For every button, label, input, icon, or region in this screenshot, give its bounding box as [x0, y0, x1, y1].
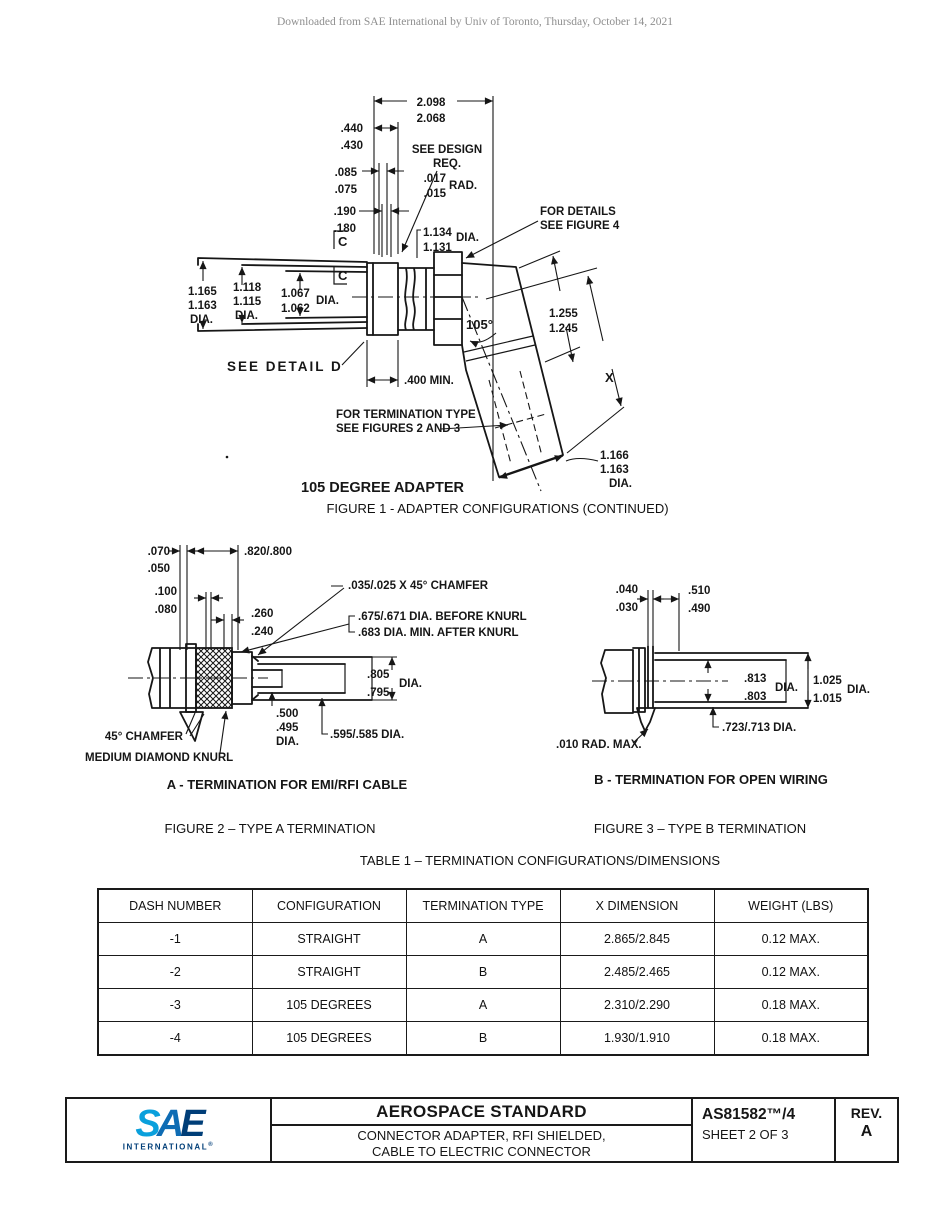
dim-1255-lower: 1.245 [549, 323, 578, 335]
dim-overall-lower: 2.068 [417, 113, 446, 125]
note-diamond-knurl: MEDIUM DIAMOND KNURL [85, 752, 233, 764]
document-title-line2: CABLE TO ELECTRIC CONNECTOR [372, 1144, 591, 1160]
section-c-top: C [338, 234, 348, 249]
table-row: -3 105 DEGREES A 2.310/2.290 0.18 MAX. [98, 989, 868, 1022]
stray-dot [226, 456, 229, 459]
dim-1166-upper: 1.166 [600, 450, 629, 462]
dim-100-lower: .080 [155, 604, 177, 616]
table-cell: 105 DEGREES [252, 1022, 406, 1056]
dim-1165-label: DIA. [190, 314, 213, 326]
dim-1118-lower: 1.115 [233, 296, 262, 308]
table-cell: 1.930/1.910 [560, 1022, 714, 1056]
dim-1025-label: DIA. [847, 684, 870, 696]
dim-1067-upper: 1.067 [281, 288, 310, 300]
table-cell: 2.865/2.845 [560, 923, 714, 956]
dim-440-upper: .440 [341, 123, 363, 135]
table-header-row: DASH NUMBER CONFIGURATION TERMINATION TY… [98, 889, 868, 923]
coupling-nut [434, 252, 462, 345]
dim-085-upper: .085 [335, 167, 358, 179]
chamfer-cone [180, 712, 203, 741]
dim-1134-label: DIA. [456, 232, 479, 244]
table-row: -2 STRAIGHT B 2.485/2.465 0.12 MAX. [98, 956, 868, 989]
table-cell: 105 DEGREES [252, 989, 406, 1022]
figure1-subtitle: 105 DEGREE ADAPTER [301, 480, 465, 496]
sae-logo-wordmark: SAE [135, 1108, 201, 1140]
dim-723: .723/.713 DIA. [722, 722, 796, 734]
table-cell: -3 [98, 989, 252, 1022]
dim-1166-label: DIA. [609, 478, 632, 490]
dim-400-min: .400 MIN. [404, 375, 454, 387]
dim-440-lower: .430 [341, 140, 363, 152]
document-page: Downloaded from SAE International by Uni… [0, 0, 950, 1230]
watermark-text: Downloaded from SAE International by Uni… [0, 16, 950, 28]
header-dash-number: DASH NUMBER [98, 889, 252, 923]
title-block-center: AEROSPACE STANDARD CONNECTOR ADAPTER, RF… [272, 1099, 693, 1161]
dim-040-upper: .040 [616, 584, 638, 596]
table1-title: TABLE 1 – TERMINATION CONFIGURATIONS/DIM… [130, 853, 950, 868]
dim-100-upper: .100 [155, 586, 177, 598]
dim-1134-upper: 1.134 [423, 227, 452, 239]
dim-1067-lower: 1.062 [281, 303, 310, 315]
header-x-dimension: X DIMENSION [560, 889, 714, 923]
figure3-label: B - TERMINATION FOR OPEN WIRING [594, 772, 828, 787]
dim-500-lower: .495 [276, 722, 299, 734]
note-45-chamfer: 45° CHAMFER [105, 731, 184, 743]
table-cell: A [406, 989, 560, 1022]
dim-x: X [605, 370, 614, 385]
note-design-2: REQ. [433, 158, 461, 170]
dim-010-rad: .010 RAD. MAX. [556, 739, 642, 751]
document-title: CONNECTOR ADAPTER, RFI SHIELDED, CABLE T… [272, 1126, 691, 1161]
dim-500-upper: .500 [276, 708, 298, 720]
dim-1118-upper: 1.118 [233, 282, 262, 294]
termination-a-outline [128, 644, 372, 741]
note-see-detail-d: SEE DETAIL D [227, 359, 343, 374]
document-title-line1: CONNECTOR ADAPTER, RFI SHIELDED, [357, 1128, 605, 1144]
dim-rad-lower: .015 [424, 188, 447, 200]
figure2-caption: FIGURE 2 – TYPE A TERMINATION [80, 821, 460, 836]
figure1-drawing: 2.098 2.068 .440 .430 SEE DESIGN REQ. .0… [150, 85, 710, 505]
dim-070-upper: .070 [148, 546, 170, 558]
dim-510-lower: .490 [688, 603, 710, 615]
dim-500-label: DIA. [276, 736, 299, 748]
dim-1166-lower: 1.163 [600, 464, 629, 476]
note-details-1: FOR DETAILS [540, 206, 616, 218]
note-after-knurl: .683 DIA. MIN. AFTER KNURL [358, 627, 519, 639]
sheet-number: SHEET 2 OF 3 [702, 1127, 825, 1142]
table-cell: 0.12 MAX. [714, 923, 868, 956]
sae-logo-letter-e: E [180, 1103, 201, 1145]
sae-logo: SAE INTERNATIONAL® [67, 1099, 272, 1161]
figure3-drawing: .040 .030 .510 .490 .813 .803 DIA. 1.025… [550, 575, 880, 790]
dim-190-upper: .190 [334, 206, 356, 218]
table-cell: 2.310/2.290 [560, 989, 714, 1022]
revision-value: A [836, 1123, 897, 1141]
table-cell: -4 [98, 1022, 252, 1056]
header-configuration: CONFIGURATION [252, 889, 406, 923]
revision-cell: REV. A [836, 1099, 897, 1161]
document-number-cell: AS81582™/4 SHEET 2 OF 3 [693, 1099, 836, 1161]
dim-1118-label: DIA. [235, 310, 258, 322]
table-cell: STRAIGHT [252, 923, 406, 956]
dim-1025-lower: 1.015 [813, 693, 842, 705]
table-cell: B [406, 1022, 560, 1056]
document-number: AS81582™/4 [702, 1106, 825, 1124]
dim-085-lower: .075 [335, 184, 358, 196]
table-row: -1 STRAIGHT A 2.865/2.845 0.12 MAX. [98, 923, 868, 956]
dim-040-lower: .030 [616, 602, 638, 614]
table-row: -4 105 DEGREES B 1.930/1.910 0.18 MAX. [98, 1022, 868, 1056]
revision-label: REV. [836, 1105, 897, 1121]
dim-rad-label: RAD. [449, 180, 477, 192]
table-cell: 2.485/2.465 [560, 956, 714, 989]
table-cell: -1 [98, 923, 252, 956]
centerlines [352, 297, 541, 491]
dim-805-lower: .795 [367, 687, 390, 699]
sae-logo-letter-a: A [157, 1103, 180, 1145]
termination-table: DASH NUMBER CONFIGURATION TERMINATION TY… [97, 888, 869, 1056]
dim-angle-105: 105° [466, 317, 493, 332]
table-cell: 0.18 MAX. [714, 1022, 868, 1056]
header-weight: WEIGHT (LBS) [714, 889, 868, 923]
section-c-bottom: C [338, 268, 348, 283]
dim-260-lower: .240 [251, 626, 273, 638]
figure1-caption: FIGURE 1 - ADAPTER CONFIGURATIONS (CONTI… [0, 501, 950, 516]
note-chamfer-035: .035/.025 X 45° CHAMFER [348, 580, 489, 592]
dim-1255-upper: 1.255 [549, 308, 578, 320]
dim-595: .595/.585 DIA. [330, 729, 404, 741]
document-type: AEROSPACE STANDARD [272, 1099, 691, 1126]
dim-813-lower: .803 [744, 691, 766, 703]
dim-1067-label: DIA. [316, 295, 339, 307]
dim-1165-lower: 1.163 [188, 300, 217, 312]
dim-260-upper: .260 [251, 608, 273, 620]
dim-1165-upper: 1.165 [188, 286, 217, 298]
dim-820: .820/.800 [244, 546, 292, 558]
figure3-caption: FIGURE 3 – TYPE B TERMINATION [510, 821, 890, 836]
table-cell: A [406, 923, 560, 956]
dim-813-upper: .813 [744, 673, 766, 685]
note-termination-2: SEE FIGURES 2 AND 3 [336, 423, 460, 435]
dim-1134-lower: 1.131 [423, 242, 452, 254]
table-cell: STRAIGHT [252, 956, 406, 989]
table-cell: 0.18 MAX. [714, 989, 868, 1022]
figure2-drawing: .070 .050 .820/.800 .100 .080 .260 .240 … [80, 535, 500, 797]
dim-rad-upper: .017 [424, 173, 446, 185]
note-before-knurl: .675/.671 DIA. BEFORE KNURL [358, 611, 527, 623]
hidden-bore-lines [489, 371, 546, 464]
dim-805-label: DIA. [399, 678, 422, 690]
note-termination-1: FOR TERMINATION TYPE [336, 409, 476, 421]
dim-overall-upper: 2.098 [417, 97, 446, 109]
sae-logo-subtext: INTERNATIONAL® [123, 1142, 215, 1152]
title-block: SAE INTERNATIONAL® AEROSPACE STANDARD CO… [65, 1097, 899, 1163]
dim-070-lower: .050 [148, 563, 170, 575]
dim-510-upper: .510 [688, 585, 710, 597]
dim-1025-upper: 1.025 [813, 675, 842, 687]
header-termination-type: TERMINATION TYPE [406, 889, 560, 923]
note-design-1: SEE DESIGN [412, 144, 482, 156]
dim-813-label: DIA. [775, 682, 798, 694]
note-details-2: SEE FIGURE 4 [540, 220, 620, 232]
sae-logo-letter-s: S [135, 1103, 156, 1145]
dim-805-upper: .805 [367, 669, 390, 681]
registered-mark: ® [208, 1142, 214, 1148]
table-cell: 0.12 MAX. [714, 956, 868, 989]
table-cell: B [406, 956, 560, 989]
figure2-label: A - TERMINATION FOR EMI/RFI CABLE [167, 777, 408, 792]
figure3-dimension-lines [633, 590, 808, 743]
elbow-outline [462, 263, 563, 477]
table-cell: -2 [98, 956, 252, 989]
